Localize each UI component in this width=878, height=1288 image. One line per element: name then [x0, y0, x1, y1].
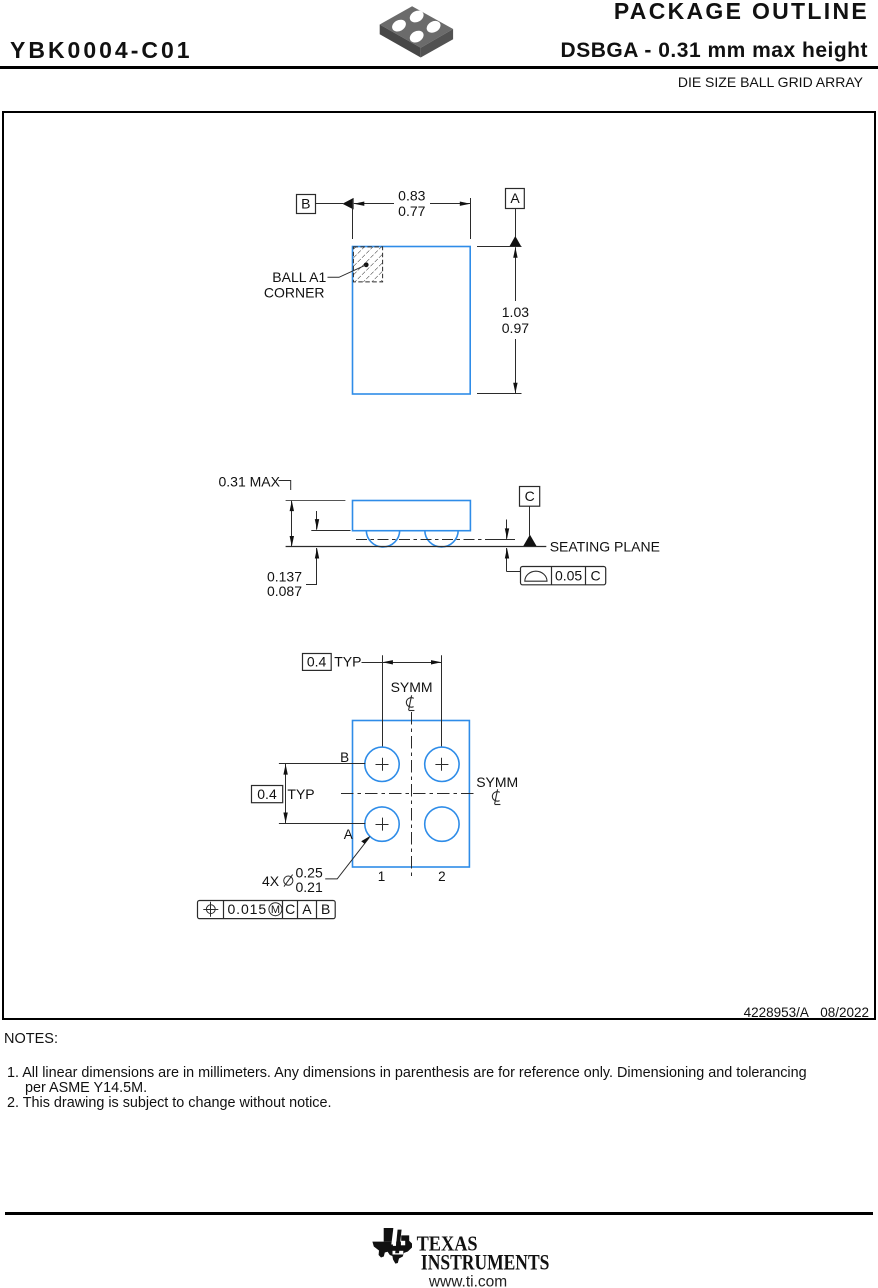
svg-text:TYP: TYP	[334, 654, 361, 670]
svg-text:SEATING PLANE: SEATING PLANE	[550, 538, 660, 554]
svg-text:BALL A1: BALL A1	[272, 269, 326, 285]
svg-text:TYP: TYP	[287, 786, 314, 802]
svg-text:0.4: 0.4	[257, 786, 277, 802]
svg-text:0.087: 0.087	[267, 583, 302, 599]
svg-text:C: C	[525, 488, 535, 504]
svg-text:B: B	[301, 196, 310, 212]
svg-text:SYMM: SYMM	[391, 679, 433, 695]
svg-text:2: 2	[438, 869, 446, 884]
svg-text:0.97: 0.97	[502, 320, 529, 336]
svg-text:0.31 MAX: 0.31 MAX	[219, 474, 281, 490]
svg-text:0.015: 0.015	[228, 901, 268, 917]
svg-text:C: C	[285, 901, 295, 917]
svg-text:www.ti.com: www.ti.com	[428, 1273, 507, 1288]
svg-text:0.77: 0.77	[398, 203, 425, 219]
svg-text:0.4: 0.4	[307, 654, 327, 670]
svg-text:A: A	[302, 901, 312, 917]
svg-text:INSTRUMENTS: INSTRUMENTS	[421, 1250, 550, 1275]
svg-text:C: C	[590, 567, 600, 583]
svg-text:0.21: 0.21	[296, 879, 323, 895]
svg-text:0.137: 0.137	[267, 568, 302, 584]
svg-text:1.03: 1.03	[502, 304, 529, 320]
svg-text:A: A	[510, 190, 520, 206]
svg-text:B: B	[321, 901, 330, 917]
svg-text:CORNER: CORNER	[264, 284, 325, 300]
svg-text:0.05: 0.05	[555, 567, 582, 583]
svg-text:0.25: 0.25	[296, 864, 323, 880]
svg-text:SYMM: SYMM	[476, 774, 518, 790]
svg-text:M: M	[271, 904, 280, 916]
svg-text:B: B	[340, 750, 349, 765]
svg-text:4X: 4X	[262, 873, 280, 889]
svg-text:0.83: 0.83	[398, 187, 425, 203]
svg-text:1: 1	[378, 869, 386, 884]
svg-text:A: A	[344, 827, 353, 842]
